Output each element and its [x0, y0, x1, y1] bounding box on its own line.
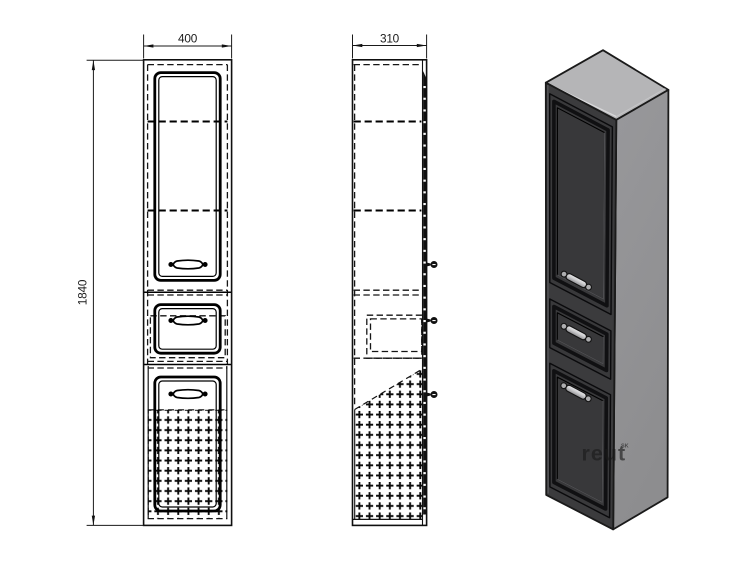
svg-text:SK: SK: [621, 444, 629, 450]
svg-text:310: 310: [380, 31, 400, 45]
svg-text:reut: reut: [582, 442, 627, 466]
svg-text:400: 400: [178, 31, 198, 45]
svg-text:1840: 1840: [75, 279, 89, 305]
